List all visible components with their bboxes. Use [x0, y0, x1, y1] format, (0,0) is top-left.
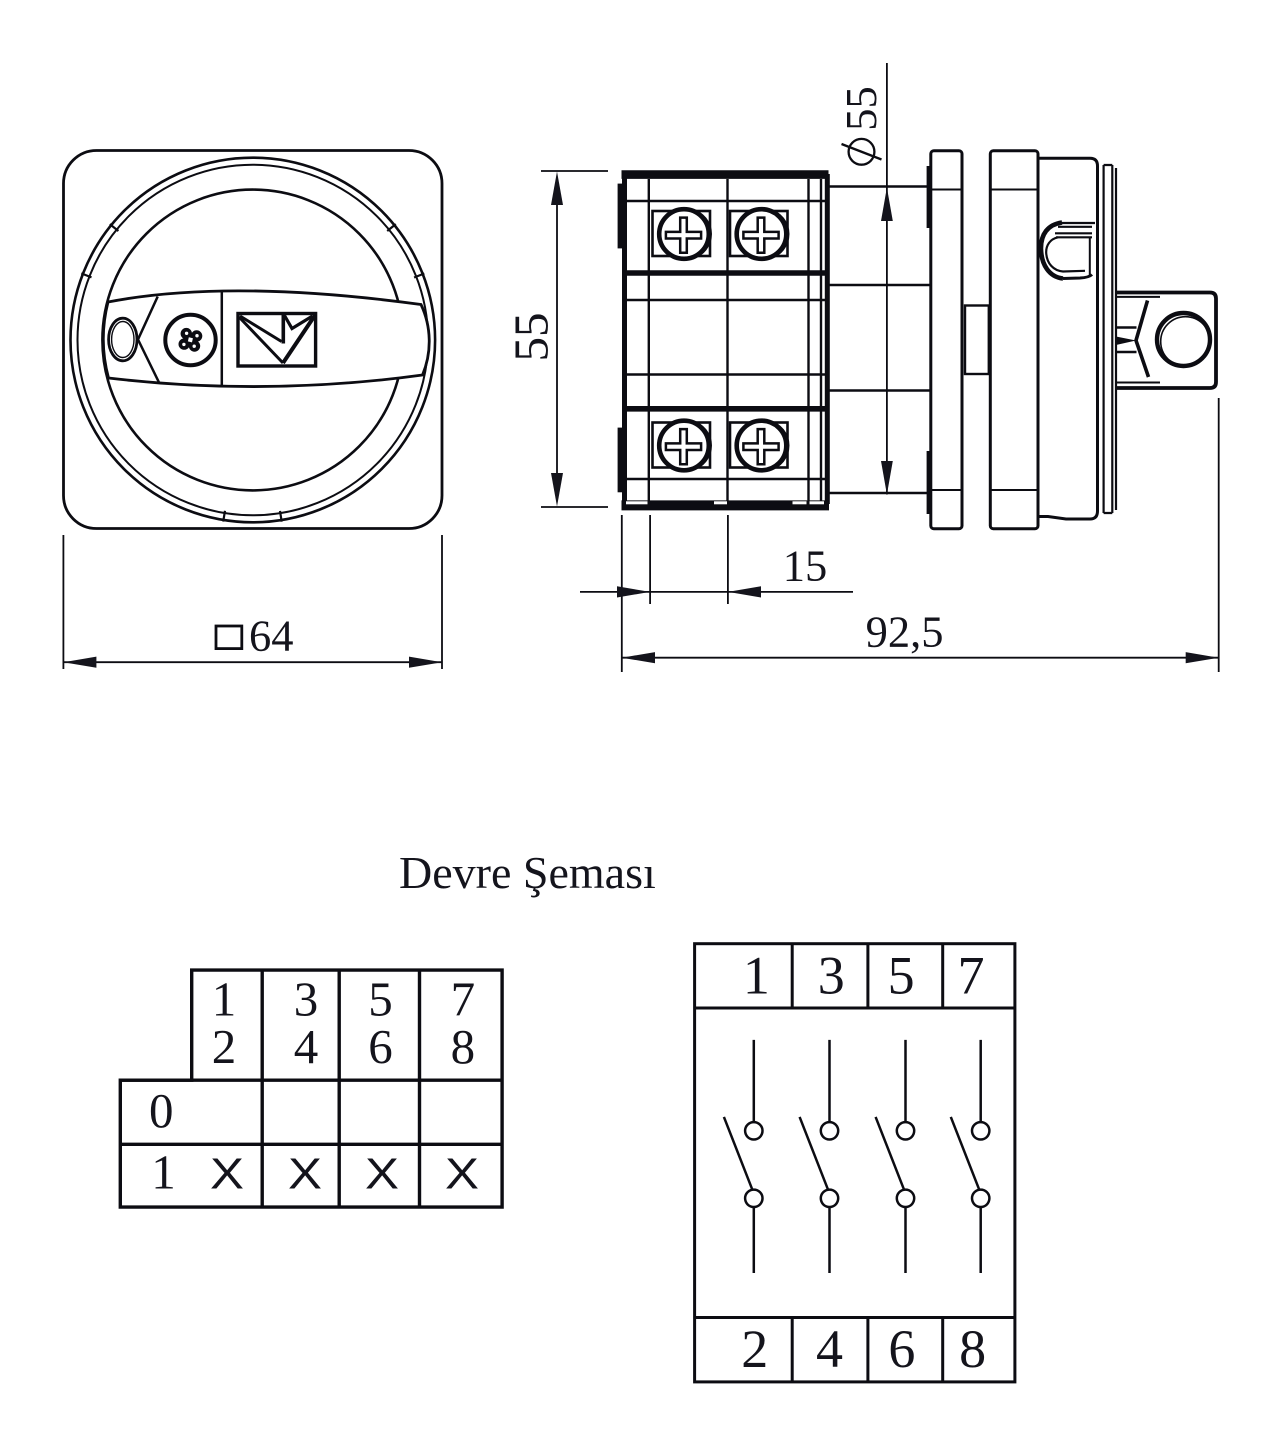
svg-text:Devre Şeması: Devre Şeması — [399, 847, 656, 898]
svg-text:6: 6 — [368, 1019, 393, 1074]
svg-text:8: 8 — [959, 1319, 986, 1379]
svg-text:4: 4 — [294, 1019, 319, 1074]
svg-text:5: 5 — [888, 945, 915, 1005]
svg-text:15: 15 — [783, 541, 828, 591]
svg-text:64: 64 — [249, 611, 294, 661]
svg-text:2: 2 — [741, 1319, 768, 1379]
svg-text:1: 1 — [743, 945, 770, 1005]
svg-text:X: X — [365, 1149, 399, 1198]
svg-text:1: 1 — [151, 1144, 176, 1199]
svg-text:0: 0 — [149, 1083, 174, 1138]
svg-text:X: X — [288, 1149, 322, 1198]
svg-text:55: 55 — [836, 86, 886, 131]
svg-text:7: 7 — [958, 945, 985, 1005]
svg-text:92,5: 92,5 — [866, 606, 944, 656]
svg-text:2: 2 — [212, 1019, 237, 1074]
svg-text:55: 55 — [504, 313, 559, 362]
svg-text:6: 6 — [888, 1319, 915, 1379]
svg-text:4: 4 — [816, 1319, 843, 1379]
svg-text:8: 8 — [451, 1019, 476, 1074]
svg-text:X: X — [445, 1149, 479, 1198]
svg-text:X: X — [210, 1149, 244, 1198]
svg-text:3: 3 — [818, 945, 845, 1005]
